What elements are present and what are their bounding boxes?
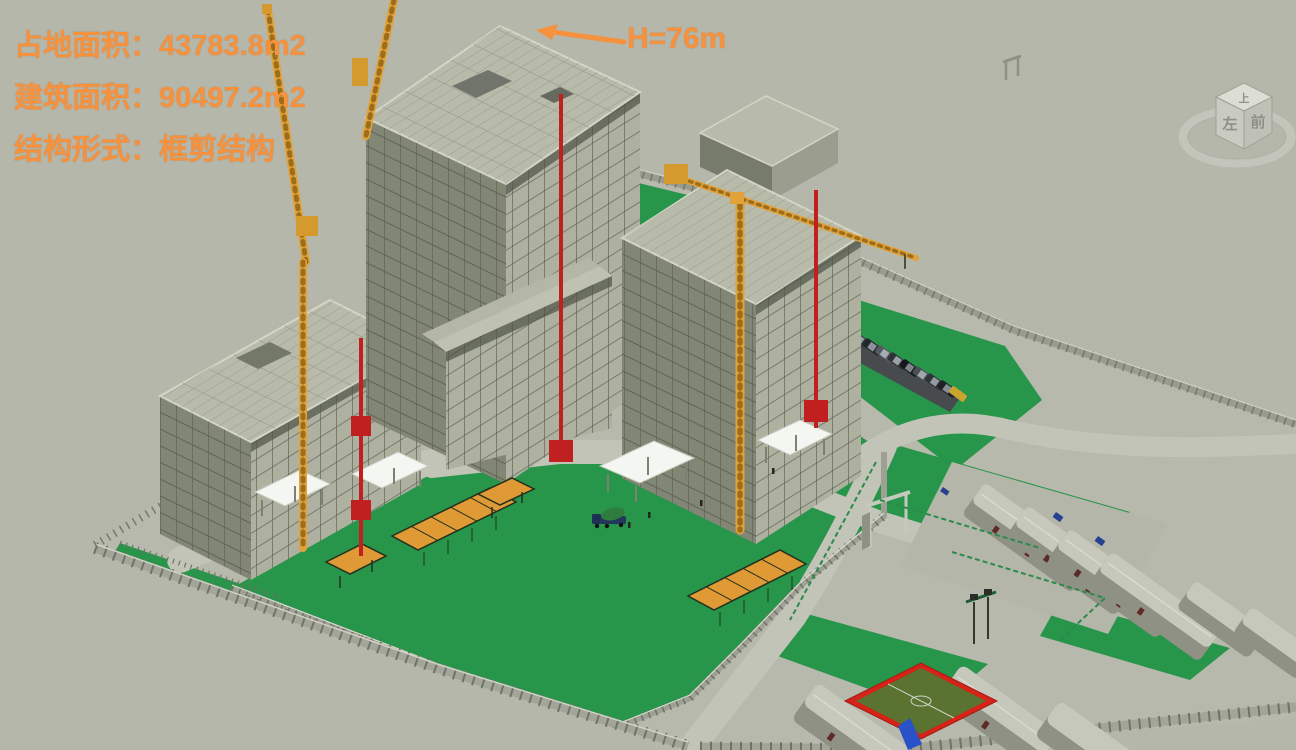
viewcube-label-top: 上 — [1239, 91, 1250, 105]
structure-type-label: 结构形式：框剪结构 — [14, 124, 306, 176]
height-label: H=76m — [627, 22, 726, 56]
viewcube-label-left: 左 — [1221, 115, 1237, 133]
viewcube-label-front: 前 — [1250, 113, 1265, 131]
project-annotations: 占地面积：43783.8m2 建筑面积：90497.2m2 结构形式：框剪结构 — [14, 20, 306, 176]
bim-viewport: 上 左 前 占地面积：43783.8m2 建筑面积：90497.2m2 结构形式… — [0, 0, 1296, 750]
building-area-label: 建筑面积：90497.2m2 — [14, 72, 306, 124]
site-area-label: 占地面积：43783.8m2 — [14, 20, 306, 72]
